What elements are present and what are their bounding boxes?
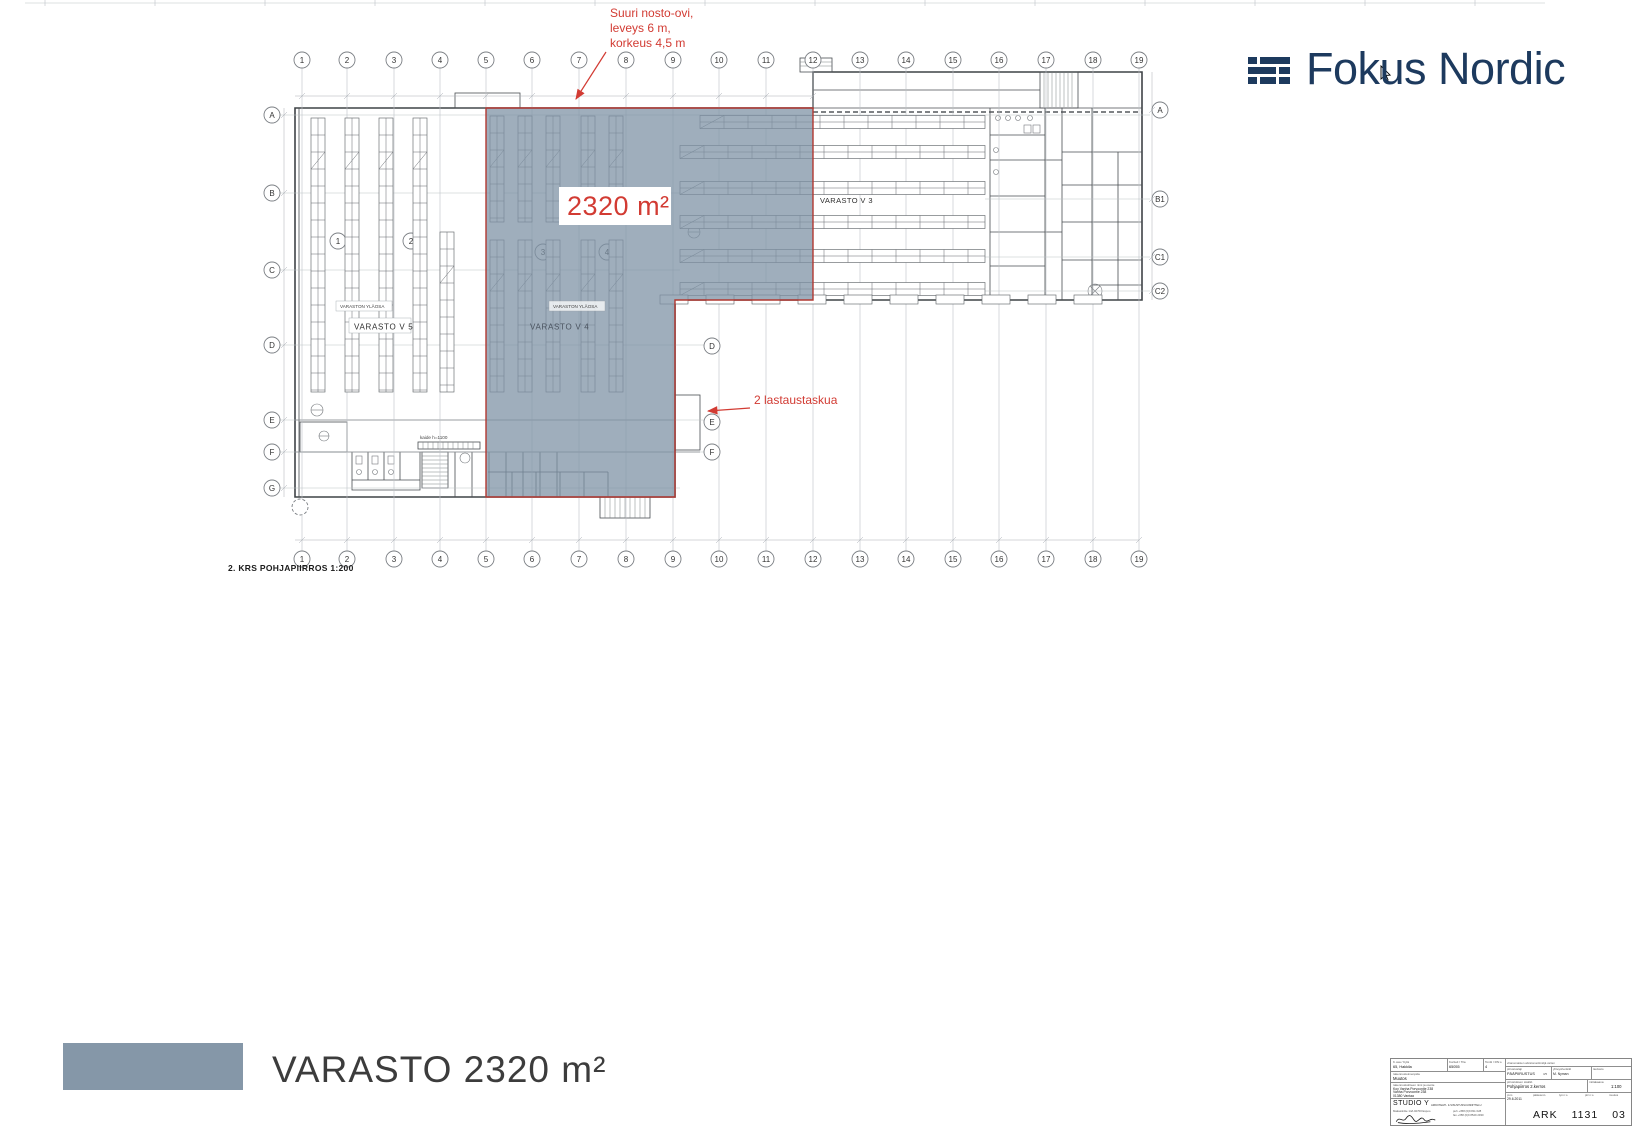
tb-h-piir: piir n:o bbox=[1585, 1093, 1593, 1097]
tb-cell1-value: 65, Hakkila bbox=[1393, 1065, 1412, 1069]
grid-label: 15 bbox=[949, 555, 958, 564]
door-note-line2: leveys 6 m, bbox=[610, 21, 671, 35]
legend-swatch bbox=[63, 1043, 243, 1090]
grid-label: 1 bbox=[300, 56, 305, 65]
grid-label: 11 bbox=[762, 56, 771, 65]
tb-studio-name: STUDIO Y bbox=[1393, 1100, 1429, 1107]
stairwell-mid bbox=[422, 452, 448, 488]
grid-label: 8 bbox=[624, 56, 629, 65]
grid-label: A bbox=[269, 111, 275, 120]
tb-archive-note: viranomaisten arkistomerkintöjä varten bbox=[1507, 1061, 1555, 1065]
grid-label: 9 bbox=[671, 555, 676, 564]
tb-type-value: PÄÄPIIRUSTUS bbox=[1507, 1072, 1535, 1076]
grid-label: 4 bbox=[438, 555, 443, 564]
tb-cell2-value: 65055 bbox=[1449, 1065, 1460, 1069]
grid-label: 9 bbox=[671, 56, 676, 65]
plan-graphic bbox=[936, 295, 964, 304]
signature bbox=[1393, 1112, 1445, 1125]
grid-label: 14 bbox=[902, 56, 911, 65]
grid-label: F bbox=[270, 448, 275, 457]
grid-label: 13 bbox=[856, 555, 865, 564]
tb-date: 29.6.2011 bbox=[1507, 1097, 1522, 1101]
grid-label: B1 bbox=[1155, 195, 1165, 204]
grid-label: 3 bbox=[392, 56, 397, 65]
tb-contact-label: yhteyshenkilö bbox=[1553, 1067, 1571, 1071]
grid-label: 12 bbox=[809, 555, 818, 564]
tb-h-pvm: pvm bbox=[1507, 1093, 1512, 1097]
grid-label: G bbox=[269, 484, 275, 493]
legend-label: VARASTO 2320 m² bbox=[272, 1051, 606, 1088]
tb-cell3-label: Tontti / RN:o bbox=[1485, 1060, 1502, 1064]
drawing-sheet: 1122334455667788991010111112121313141415… bbox=[0, 0, 1640, 1129]
tb-row3-line3: 01380 Vantaa bbox=[1393, 1094, 1414, 1098]
plan-graphic bbox=[1074, 295, 1102, 304]
label-varasto-v4: VARASTO V 4 bbox=[530, 323, 589, 332]
area-label: 2320 m² bbox=[567, 191, 670, 221]
dock-note-arrow bbox=[708, 408, 750, 411]
grid-label: 4 bbox=[438, 56, 443, 65]
grid-label: E bbox=[269, 416, 274, 425]
tb-h-suunn: pääsuunn. bbox=[1533, 1093, 1546, 1097]
grid-label: 8 bbox=[624, 555, 629, 564]
door-note-line1: Suuri nosto-ovi, bbox=[610, 6, 693, 20]
grid-label: B bbox=[269, 189, 274, 198]
grid-label: 7 bbox=[577, 56, 582, 65]
door-note-line3: korkeus 4,5 m bbox=[610, 36, 685, 50]
railing bbox=[418, 442, 480, 449]
grid-label: A bbox=[1157, 106, 1163, 115]
label-varasto-v5: VARASTO V 5 bbox=[354, 323, 413, 332]
tb-contact-value: M. Nyman bbox=[1553, 1072, 1568, 1076]
grid-label: 16 bbox=[995, 56, 1004, 65]
plan-graphic bbox=[844, 295, 872, 304]
tb-code-a: ARK bbox=[1533, 1109, 1558, 1121]
grid-label: 1 bbox=[336, 237, 341, 246]
grid-label: D bbox=[269, 341, 275, 350]
title-block: K.osa / Kylä 65, Hakkila Kortteli / Tila… bbox=[1390, 1058, 1632, 1126]
tb-scale-value: 1:100 bbox=[1611, 1084, 1621, 1089]
grid-label: 10 bbox=[715, 555, 724, 564]
roof-bump bbox=[455, 93, 520, 108]
tb-h-muutos: muutos bbox=[1609, 1093, 1618, 1097]
grid-label: F bbox=[710, 448, 715, 457]
grid-label: 6 bbox=[530, 555, 535, 564]
grid-label: 11 bbox=[762, 555, 771, 564]
grid-label: 17 bbox=[1042, 56, 1051, 65]
tb-cell3-value: 4 bbox=[1485, 1065, 1487, 1069]
grid-label: 6 bbox=[530, 56, 535, 65]
fokus-nordic-logo-text: Fokus Nordic bbox=[1306, 46, 1565, 91]
tb-cell2-label: Kortteli / Tila bbox=[1449, 1060, 1466, 1064]
grid-label: 18 bbox=[1089, 56, 1098, 65]
label-v4-upper: VARASTON YLÄOSA bbox=[553, 303, 598, 309]
grid-label: D bbox=[709, 342, 715, 351]
plan-graphic bbox=[1028, 295, 1056, 304]
grid-label: 16 bbox=[995, 555, 1004, 564]
floor-plan: 1122334455667788991010111112121313141415… bbox=[0, 0, 1640, 1129]
grid-label: 2 bbox=[345, 56, 350, 65]
bottom-left-room bbox=[300, 422, 347, 452]
tb-content-label: piirustuksen sisältö bbox=[1507, 1080, 1532, 1084]
grid-label: E bbox=[709, 418, 714, 427]
tb-code-b: 1131 bbox=[1572, 1109, 1599, 1121]
grid-bubble bbox=[292, 499, 308, 515]
label-railing: kaide h=1100 bbox=[420, 435, 448, 440]
loading-dock-bay bbox=[675, 395, 700, 450]
grid-label: 5 bbox=[484, 555, 489, 564]
tb-sheet: 3/5 bbox=[1543, 1072, 1547, 1076]
grid-label: 19 bbox=[1135, 56, 1144, 65]
tb-studio-sub: ARKKITEHTI- & SISUSTUSSUUNNITTELU bbox=[1431, 1104, 1481, 1107]
label-v5-upper: VARASTON YLÄOSA bbox=[340, 303, 385, 309]
tb-h-tyo: työ n:o bbox=[1559, 1093, 1567, 1097]
tb-code-c: 03 bbox=[1612, 1109, 1626, 1121]
office-block-walls bbox=[990, 108, 1142, 300]
tb-cell1-label: K.osa / Kylä bbox=[1393, 1060, 1409, 1064]
grid-label: 14 bbox=[902, 555, 911, 564]
grid-label: 3 bbox=[392, 555, 397, 564]
tb-studio-fax: fax +358 (0)9 8529 2930 bbox=[1453, 1113, 1484, 1117]
tb-file-label: tiedosto bbox=[1593, 1067, 1604, 1071]
plan-graphic bbox=[982, 295, 1010, 304]
grid-label: 12 bbox=[809, 56, 818, 65]
plan-graphic bbox=[890, 295, 918, 304]
dock-note: 2 lastaustaskua bbox=[754, 393, 838, 407]
tb-content-value: Pohjapiirros 2.kerros bbox=[1507, 1084, 1545, 1089]
grid-label: 10 bbox=[715, 56, 724, 65]
label-varasto-v3: VARASTO V 3 bbox=[820, 196, 873, 205]
grid-label: 13 bbox=[856, 56, 865, 65]
tb-row2-value: Muutos bbox=[1393, 1076, 1407, 1081]
grid-label: C1 bbox=[1155, 253, 1166, 262]
grid-label: 19 bbox=[1135, 555, 1144, 564]
plan-caption: 2. KRS POHJAPIIRROS 1:200 bbox=[228, 563, 354, 573]
grid-label: 5 bbox=[484, 56, 489, 65]
tb-drawing-code: ARK 1131 03 bbox=[1533, 1109, 1626, 1121]
tb-scale-label: mittakaava bbox=[1589, 1080, 1604, 1084]
grid-label: C2 bbox=[1155, 287, 1166, 296]
grid-label: 18 bbox=[1089, 555, 1098, 564]
grid-label: 7 bbox=[577, 555, 582, 564]
stair-treads bbox=[1044, 73, 1072, 107]
tb-type-label: piirustuslaji bbox=[1507, 1067, 1522, 1071]
fokus-nordic-logo-icon bbox=[1248, 57, 1290, 84]
grid-label: C bbox=[269, 266, 275, 275]
grid-label: 17 bbox=[1042, 555, 1051, 564]
grid-label: 15 bbox=[949, 56, 958, 65]
